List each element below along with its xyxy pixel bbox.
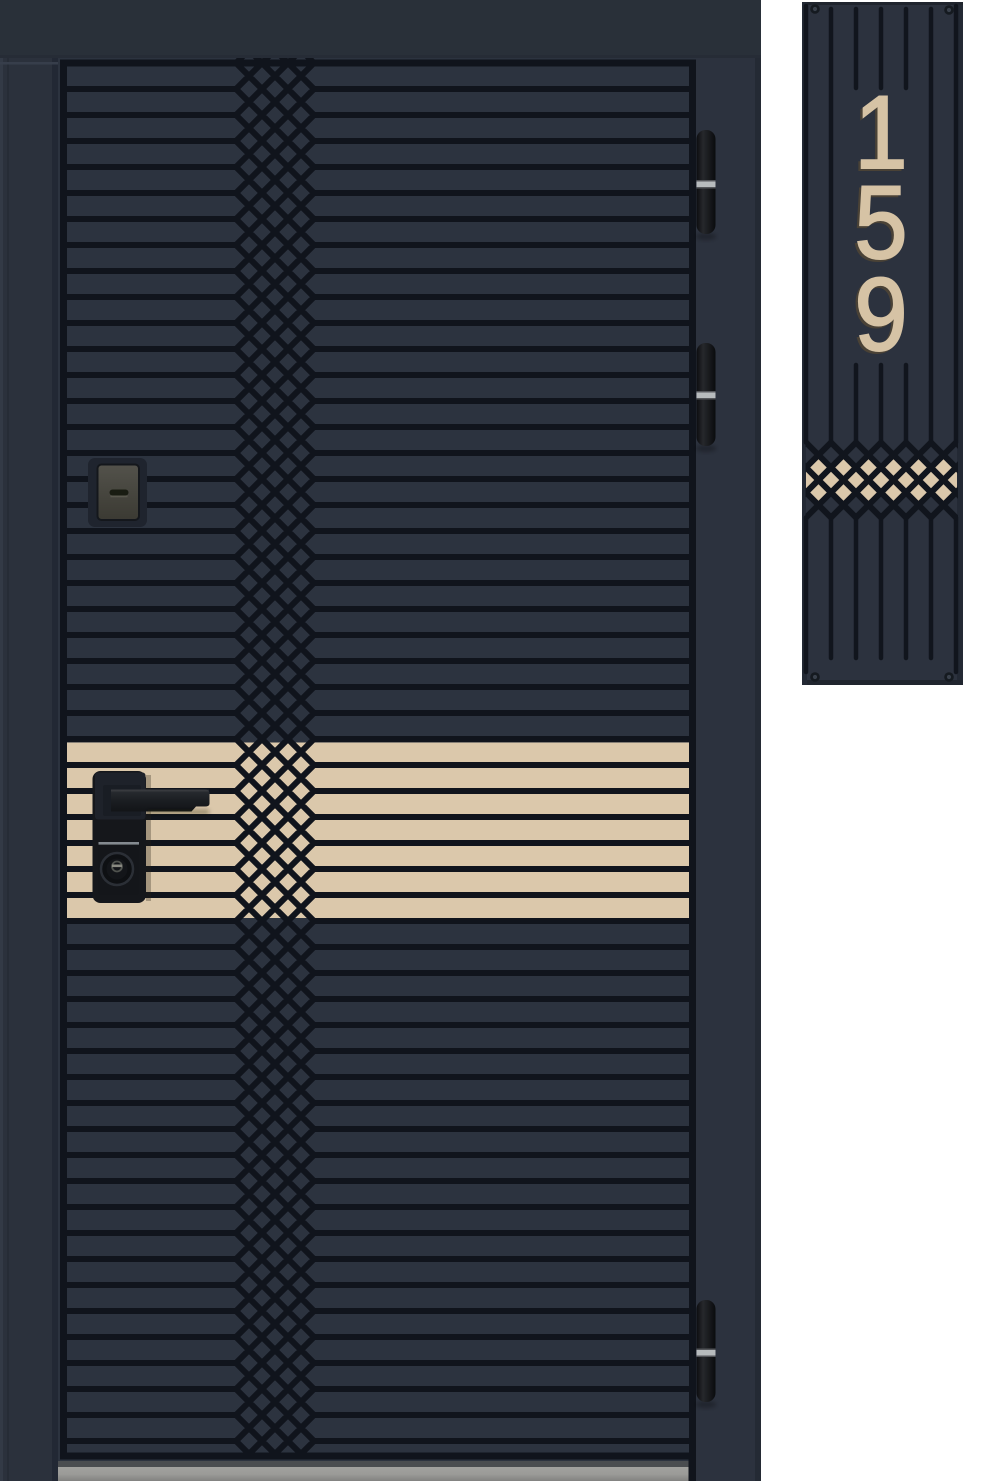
svg-text:9: 9 <box>854 257 907 373</box>
